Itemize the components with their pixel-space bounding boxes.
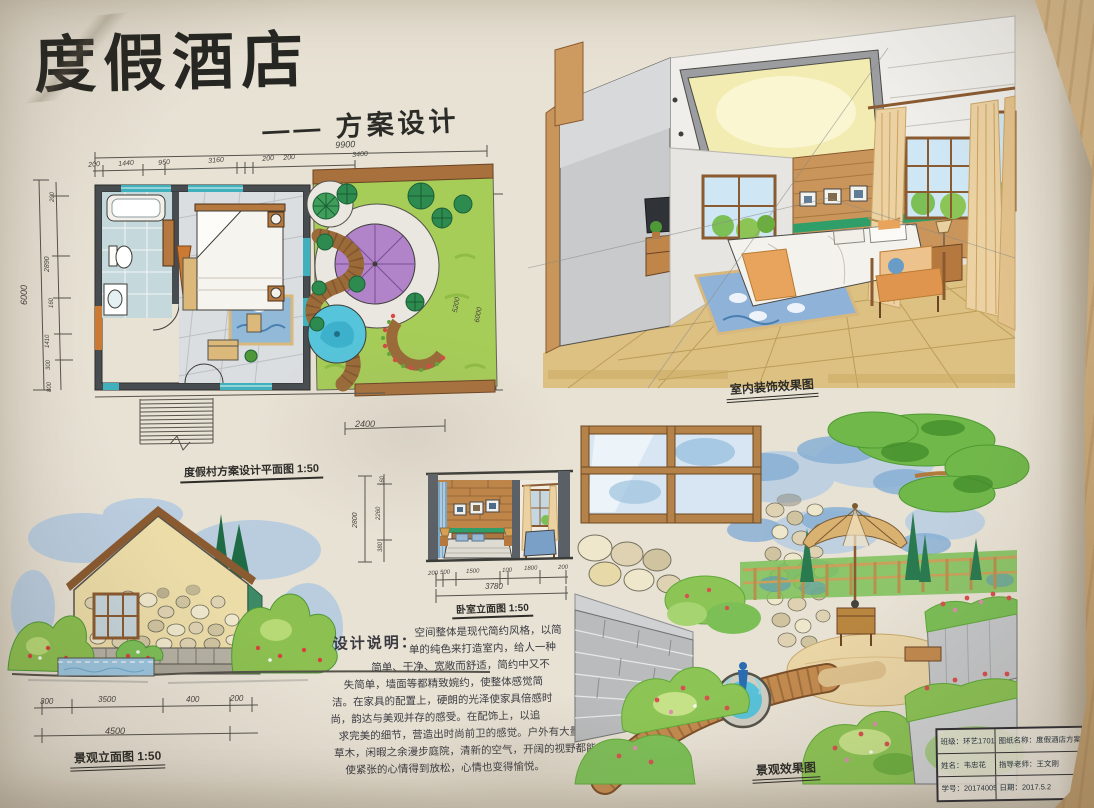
- dim-label: 2400: [355, 420, 375, 429]
- drawing-name-field: 图纸名称：度假酒店方案设计: [995, 728, 1081, 752]
- design-notes-heading: 设计说明：: [333, 631, 418, 654]
- dim-label: 800: [47, 382, 53, 392]
- title-block-row: 学号：20174005 日期：2017.5.2: [938, 774, 1082, 800]
- dim-label: 9900: [335, 140, 355, 150]
- name-field: 姓名：韦忠花: [938, 753, 996, 777]
- dim-label: 500: [440, 570, 450, 576]
- section-drawing: [426, 471, 573, 561]
- big-pebbles: [578, 535, 681, 593]
- design-notes: 设计说明： 空间整体是现代简约风格，以简 单的纯色来打造室内，给人一种 简单、干…: [328, 621, 611, 780]
- dim-label: 200: [88, 161, 100, 169]
- dim-label: 2800: [352, 512, 359, 528]
- photo-of-design-board: 度假酒店 —— 方案设计: [0, 0, 1094, 808]
- dim-label: 2890: [44, 256, 51, 272]
- board-title: 度假酒店: [33, 9, 311, 105]
- dim-label: 300: [40, 698, 53, 706]
- elevation-dim-lines: [34, 697, 258, 743]
- dim-label: 1800: [524, 566, 538, 572]
- dim-label: 200: [558, 565, 568, 571]
- dim-label: 1410: [45, 335, 51, 348]
- title-block-row: 姓名：韦忠花 指导老师：王文刚: [938, 750, 1082, 776]
- dim-label: 3400: [352, 151, 368, 159]
- class-field: 班级：环艺1701: [937, 729, 995, 753]
- interior-rendering: [528, 8, 1015, 388]
- landscape-elevation-drawing: [8, 478, 338, 778]
- landscape-elevation-caption: 景观立面图 1:50: [70, 746, 166, 771]
- dim-label: 300: [46, 360, 52, 370]
- dim-label: 1440: [118, 160, 134, 168]
- window-wall: [581, 426, 761, 523]
- dim-label: 160: [49, 298, 55, 308]
- dim-label: 6000: [20, 285, 29, 305]
- dim-label: 380: [378, 542, 384, 552]
- advisor-field: 指导老师：王文刚: [996, 751, 1082, 775]
- bedroom-elevation-drawing: [340, 440, 585, 620]
- dim-label: 2260: [376, 507, 382, 520]
- dim-label: 200: [50, 192, 56, 202]
- dim-label: 100: [502, 568, 512, 574]
- title-block: 班级：环艺1701 图纸名称：度假酒店方案设计 姓名：韦忠花 指导老师：王文刚 …: [935, 726, 1084, 802]
- dim-label: 200: [230, 695, 243, 703]
- dim-label: 200: [283, 154, 295, 162]
- dim-label: 4500: [105, 727, 125, 736]
- presentation-board-paper: 度假酒店 —— 方案设计: [0, 0, 1094, 808]
- dim-label: 400: [186, 696, 199, 704]
- dim-label: 3780: [485, 583, 503, 591]
- landscape-caption: 景观效果图: [751, 758, 820, 784]
- dim-label: 200: [428, 571, 438, 577]
- dim-label: 3500: [98, 696, 116, 704]
- dim-label: 950: [158, 159, 170, 167]
- garden-plan: [307, 164, 497, 396]
- student-id-field: 学号：20174005: [938, 776, 996, 800]
- dim-label: 160: [380, 476, 386, 486]
- dim-label: 1500: [466, 569, 480, 575]
- dim-label: 3160: [208, 157, 224, 165]
- dim-label: 200: [262, 155, 274, 163]
- pool-section: [58, 658, 154, 676]
- bedroom-elevation-caption: 卧室立面图 1:50: [452, 599, 533, 620]
- guest-room-plan: [95, 185, 310, 390]
- title-block-row: 班级：环艺1701 图纸名称：度假酒店方案设计: [937, 728, 1081, 753]
